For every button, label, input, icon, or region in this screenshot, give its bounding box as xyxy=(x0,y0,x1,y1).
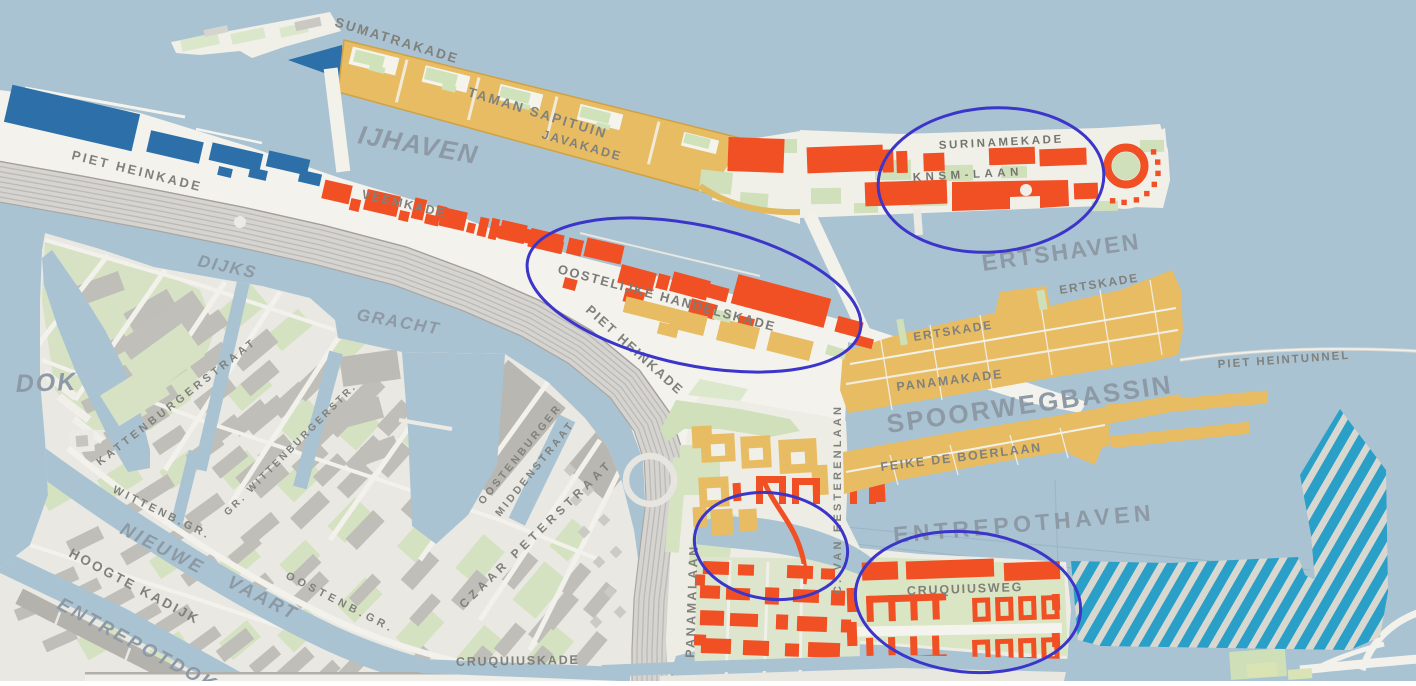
svg-text:C. VAN EESTERENLAAN: C. VAN EESTERENLAAN xyxy=(832,404,844,594)
svg-text:CRUQUIUSKADE: CRUQUIUSKADE xyxy=(456,653,580,669)
svg-text:DOK: DOK xyxy=(15,368,78,398)
